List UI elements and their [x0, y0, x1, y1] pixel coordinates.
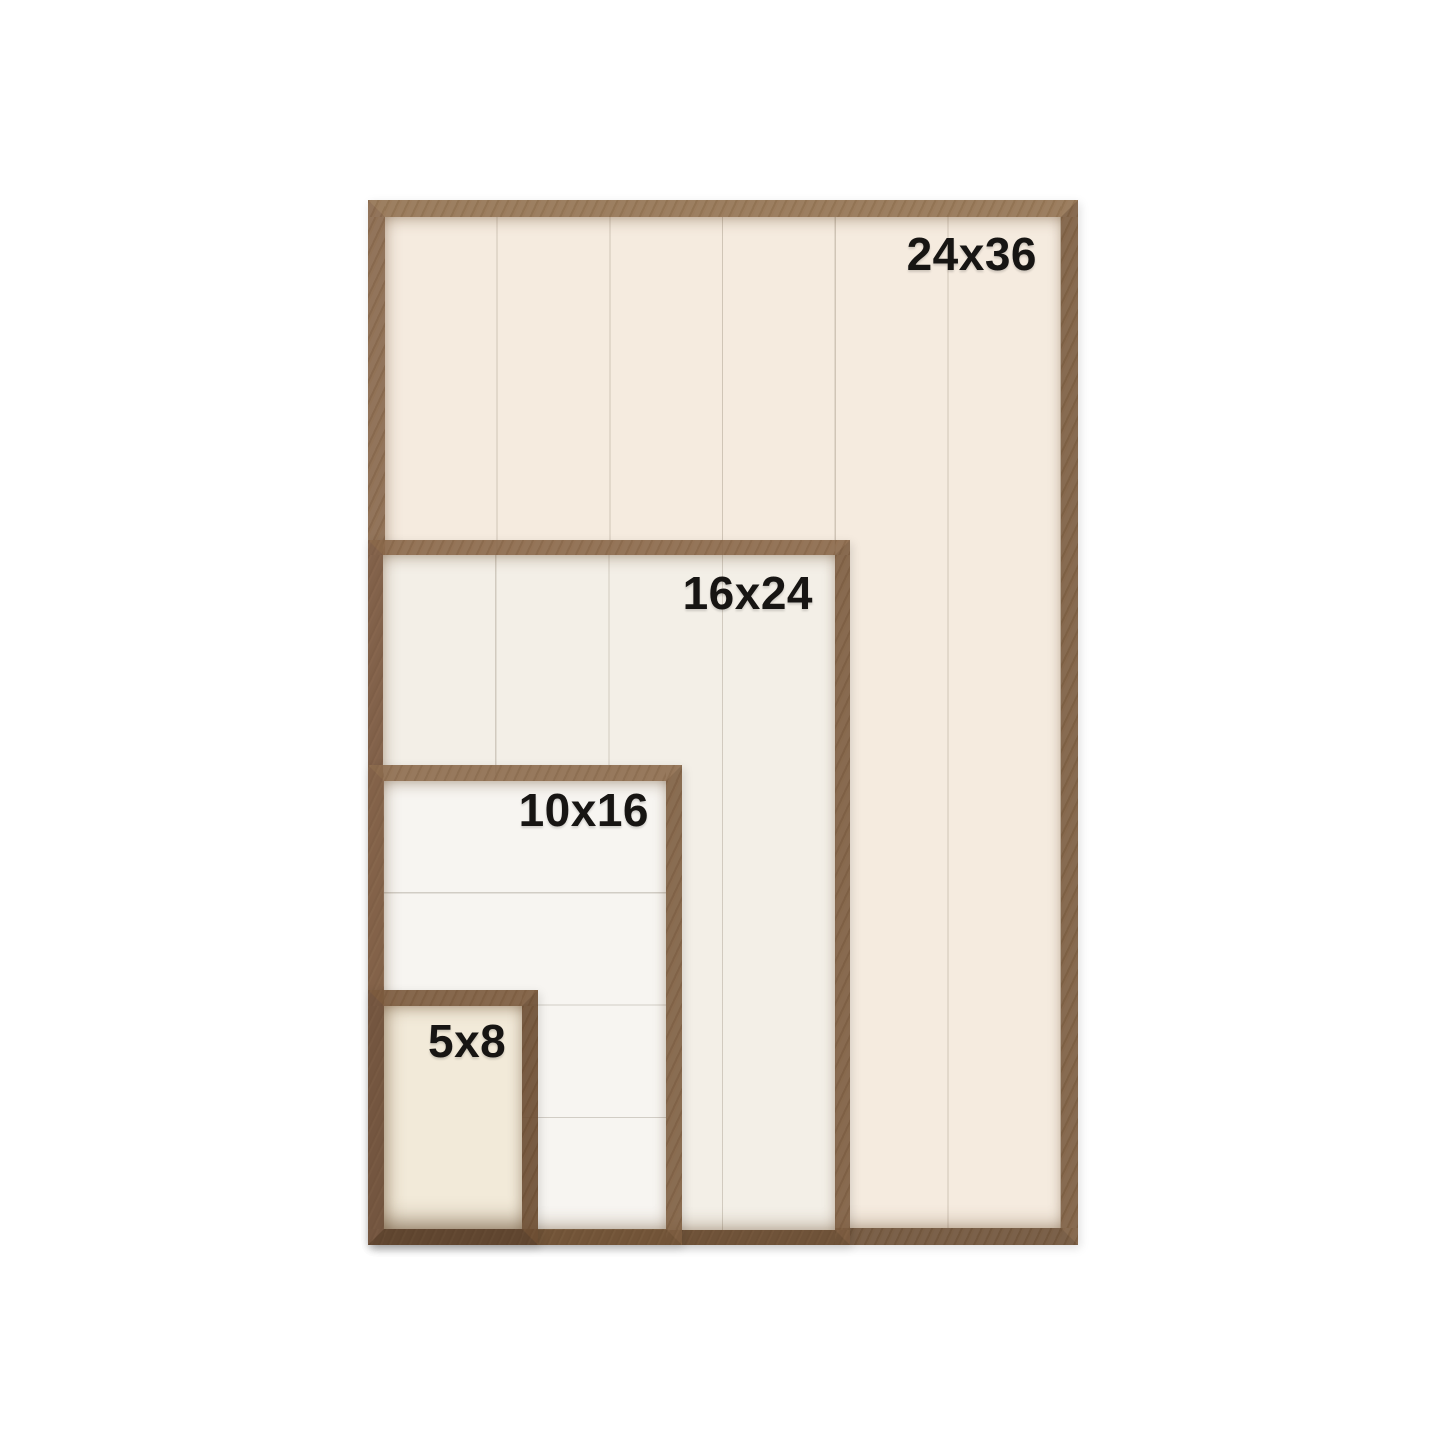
- frame-24x36-size-label: 24x36: [907, 231, 1037, 277]
- frame-5x8: 5x8: [368, 990, 538, 1245]
- frame-16x24-size-label: 16x24: [683, 570, 813, 616]
- frame-10x16-size-label: 10x16: [519, 787, 649, 833]
- frame-5x8-size-label: 5x8: [428, 1018, 506, 1064]
- frame-size-comparison-diagram: 24x36 16x24 10x16 5x8: [0, 0, 1445, 1445]
